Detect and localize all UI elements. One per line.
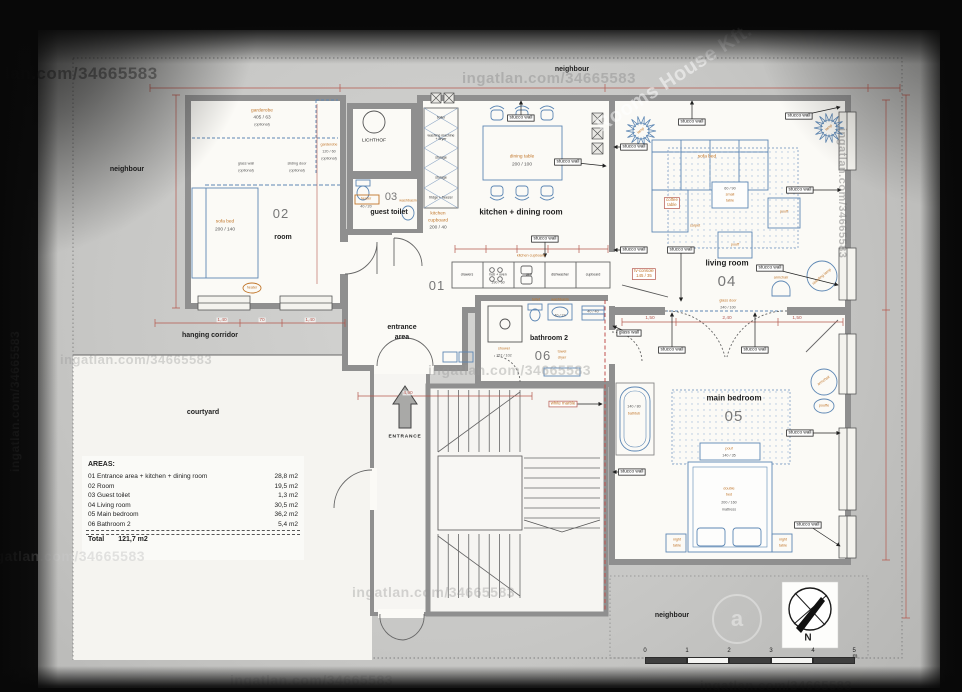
pouff-center-label: pouff: [731, 243, 739, 247]
stucco-wall-callout-10: stucco wall: [756, 265, 784, 272]
kitchen-cupboard-label2: cupboard: [428, 218, 448, 223]
room-06-name: bathroom 2: [530, 335, 568, 343]
areas-row-1: 01 Entrance area + kitchen + dining room…: [88, 473, 298, 480]
floorplan-photo: neighbour neighbour neighbour hanging co…: [0, 0, 962, 692]
stucco-wall-callout-9: stucco wall: [667, 247, 695, 254]
entrance-area-line2: area: [395, 334, 409, 342]
shower-size: 157 / 102: [496, 354, 512, 358]
pouff-right-label: pouff: [780, 210, 788, 214]
heater-02-label: heater: [247, 286, 258, 290]
entrance-area-line1: entrance: [387, 324, 416, 332]
pouf-label: pouf: [725, 447, 732, 451]
entrance-label: ENTRANCE: [388, 434, 421, 439]
scale-segment-4: [771, 657, 813, 664]
armchair-living-label: armchair: [774, 276, 788, 280]
stucco-wall-callout-14: stucco wall: [618, 469, 646, 476]
storage-unit-label-2: washing machine + dryer: [427, 134, 456, 141]
stucco-wall-callout-3: stucco wall: [531, 236, 559, 243]
kitchen-cupboard-row-label: kitchen cupboard: [517, 254, 545, 258]
dim-bedroom-center: 2,40: [722, 316, 733, 321]
scale-tick-3: 2: [727, 648, 730, 654]
coffee-table-callout: coffeetable: [664, 197, 680, 208]
bathtub-label: bathtub: [628, 412, 640, 416]
glass-wall-optional: (optional): [238, 169, 254, 173]
hanging-corridor-label: hanging corridor: [182, 332, 238, 340]
neighbour-label-top: neighbour: [555, 66, 589, 74]
scale-segment-3: [729, 657, 771, 664]
stair-note-callout: white marble: [549, 401, 578, 407]
stucco-wall-callout-5: stucco wall: [785, 113, 813, 120]
sliding-door-label: sliding door: [287, 162, 306, 166]
neighbour-label-left: neighbour: [110, 166, 144, 174]
double-bed-size: 200 / 160: [721, 501, 737, 505]
garderobe2-label: garderobe: [321, 143, 338, 147]
small-table-label2: table: [726, 199, 734, 203]
lamp-label-left: lamp: [637, 127, 646, 135]
room-04-name: living room: [705, 260, 748, 269]
labels-layer: neighbour neighbour neighbour hanging co…: [0, 0, 962, 692]
areas-row-3: 03 Guest toilet1,3 m2: [88, 492, 298, 499]
room-06-number: 06: [535, 349, 551, 363]
shower-label: shower: [498, 347, 510, 351]
dim-entrance-width: 4,90: [403, 391, 414, 396]
stucco-wall-callout-8: stucco wall: [620, 247, 648, 254]
garderobe1-size: 405 / 63: [253, 115, 270, 120]
room-05-name: main bedroom: [706, 395, 761, 404]
night-table-right-label1: night: [779, 538, 787, 542]
heater-03-size: 40 / 20: [360, 205, 371, 209]
areas-total-value: 121,7 m2: [118, 536, 148, 543]
areas-row-2: 02 Room19,5 m2: [88, 483, 298, 490]
dining-table-label: dining table: [510, 154, 535, 159]
kitchen-unit-label-4: dishwasher: [546, 273, 575, 277]
courtyard-label: courtyard: [187, 409, 219, 417]
garderobe1-optional: (optional): [254, 123, 270, 127]
heater-03-label: heater: [361, 197, 372, 201]
areas-row-5: 05 Main bedroom36,2 m2: [88, 511, 298, 518]
dining-table-size: 200 / 100: [512, 162, 532, 167]
stucco-wall-callout-15: stucco wall: [794, 522, 822, 529]
night-table-left-label2: table: [673, 544, 681, 548]
kitchen-unit-label-3: sink: [515, 273, 544, 277]
areas-row-6: 06 Bathroom 25,4 m2: [88, 521, 298, 528]
scale-segment-5: [813, 657, 855, 664]
stucco-wall-callout-11: stucco wall: [658, 347, 686, 354]
glass-wall-callout: glass wall: [617, 330, 642, 337]
toilet-06-label: toilet: [532, 298, 540, 302]
small-table-label1: small: [726, 193, 735, 197]
small-table-size: 60 / 90: [724, 187, 735, 191]
washbasin-06-label: washbasin: [551, 298, 569, 302]
glass-door-size: 240 / 100: [720, 306, 736, 310]
scale-tick-5: 4: [811, 648, 814, 654]
room-02-number: 02: [273, 207, 289, 221]
storage-unit-label-1: boiler: [427, 116, 456, 120]
pouf-size: 140 / 35: [722, 454, 735, 458]
lamp-label-right: lamp: [825, 124, 834, 132]
dim-corridor-3: 1,40: [305, 318, 316, 323]
pouffe-bedroom-label: pouffe: [819, 404, 829, 408]
mattress-label: mattress: [722, 508, 736, 512]
garderobe2-optional: (optional): [321, 157, 337, 161]
areas-total: Total121,7 m2: [88, 536, 162, 543]
dim-bedroom-left: 1,50: [645, 316, 656, 321]
kitchen-unit-label-1: drawers: [453, 273, 482, 277]
towel-dryer-size: 40 / 40: [587, 310, 598, 314]
room-05-number: 05: [725, 409, 744, 426]
dim-corridor-2: 70: [259, 318, 266, 323]
storage-unit-label-3: storage: [427, 156, 456, 160]
room-03-number: 03: [385, 191, 397, 203]
compass-north-label: N: [804, 633, 811, 644]
counter-size: 190 / 60: [491, 281, 504, 285]
kitchen-cupboard-size: 200 / 40: [429, 225, 446, 230]
night-table-right-label2: table: [779, 544, 787, 548]
armchair-bedroom-label: armchair: [817, 375, 831, 387]
carpet-living-label: carpet: [690, 224, 700, 228]
scale-tick-1: 0: [643, 648, 646, 654]
stucco-wall-callout-1: stucco wall: [507, 115, 535, 122]
double-bed-label2: bed: [726, 493, 732, 497]
scale-tick-6: 5 m: [853, 648, 858, 660]
towel-dryer-label2: dryer: [558, 356, 566, 360]
stucco-wall-callout-2: stucco wall: [554, 159, 582, 166]
stucco-wall-callout-12: stucco wall: [741, 347, 769, 354]
storage-unit-label-5: fridge + freezer: [427, 196, 456, 200]
scale-segment-1: [645, 657, 687, 664]
garderobe1-label: garderobe: [251, 108, 273, 113]
washbasin-03-label: washbasin: [399, 199, 417, 203]
glass-wall-opt-label: glass wall: [238, 162, 254, 166]
washbasin-06-size: 40 / 24: [554, 314, 565, 318]
areas-row-4: 04 Living room30,5 m2: [88, 502, 298, 509]
tv-console-callout: tv-console145 / 35: [632, 268, 656, 279]
scale-segment-2: [687, 657, 729, 664]
bathtub-size: 140 / 80: [627, 405, 640, 409]
stucco-wall-callout-7: stucco wall: [786, 187, 814, 194]
stucco-wall-callout-4: stucco wall: [678, 119, 706, 126]
towel-dryer-label1: towel: [558, 350, 567, 354]
areas-title: AREAS:: [88, 461, 115, 468]
areas-divider: [86, 530, 300, 535]
glass-door-label: glass door: [719, 299, 736, 303]
kitchen-cupboard-label1: kitchen: [430, 211, 445, 216]
stucco-wall-callout-13: stucco wall: [786, 430, 814, 437]
room-03-name: guest toilet: [370, 209, 407, 217]
dim-bedroom-right: 1,50: [792, 316, 803, 321]
scale-tick-4: 3: [769, 648, 772, 654]
kitchen-dining-name: kitchen + dining room: [479, 209, 562, 218]
sofa-bed-02-size: 200 / 140: [215, 227, 235, 232]
room-01-number: 01: [429, 279, 445, 293]
stucco-wall-callout-6: stucco wall: [620, 144, 648, 151]
garderobe2-size: 120 / 60: [322, 150, 335, 154]
standing-lamp-label: standing lamp: [812, 268, 832, 286]
sofa-living-label: sofa bed: [698, 154, 716, 159]
sofa-bed-02-label: sofa bed: [216, 219, 234, 224]
night-table-left-label1: night: [673, 538, 681, 542]
neighbour-label-bottom: neighbour: [655, 612, 689, 620]
kitchen-unit-label-5: cupboard: [579, 273, 608, 277]
storage-unit-label-4: storage: [427, 176, 456, 180]
room-02-name: room: [274, 234, 292, 242]
room-04-number: 04: [718, 274, 737, 291]
scale-bar: 012345 m: [645, 648, 859, 668]
lichthof-label: LICHTHOF: [362, 138, 386, 143]
double-bed-label1: double: [723, 487, 734, 491]
areas-table: AREAS: 01 Entrance area + kitchen + dini…: [82, 456, 304, 560]
scale-tick-2: 1: [685, 648, 688, 654]
dim-corridor-1: 1,40: [217, 318, 228, 323]
kitchen-unit-label-2: hob + oven: [484, 273, 513, 277]
sliding-door-optional: (optional): [289, 169, 305, 173]
